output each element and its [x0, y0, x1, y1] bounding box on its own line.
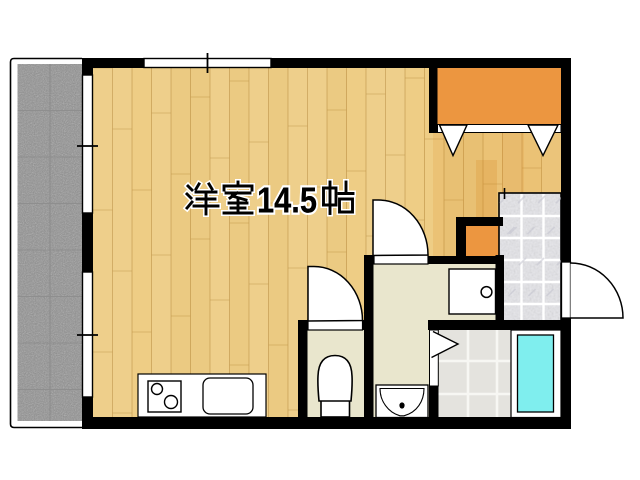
svg-text:14.5: 14.5 [257, 180, 317, 221]
